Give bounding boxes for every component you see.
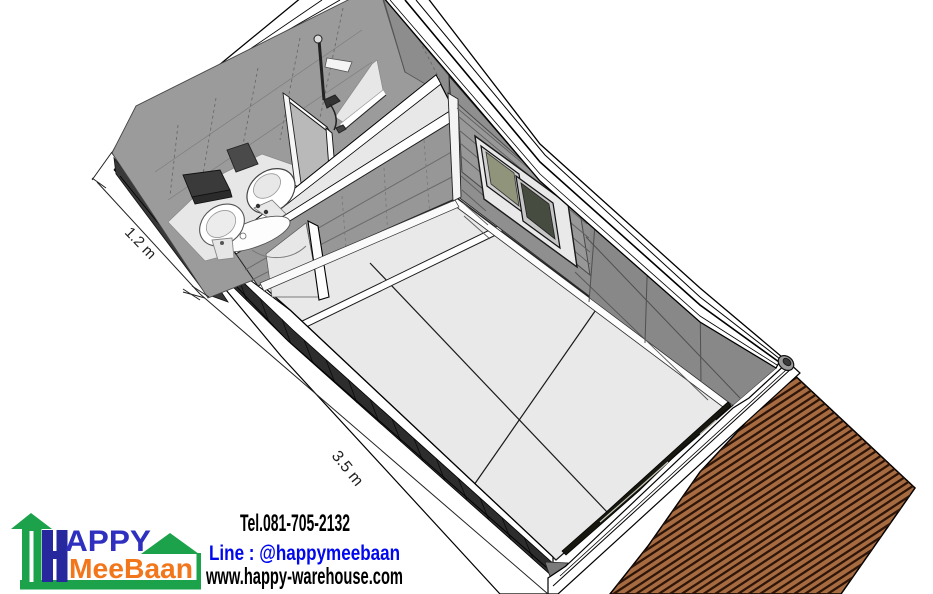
svg-text:MeeBaan: MeeBaan (69, 553, 193, 584)
svg-text:www.happy-warehouse.com: www.happy-warehouse.com (205, 563, 403, 589)
svg-text:Line : @happymeebaan: Line : @happymeebaan (209, 542, 400, 565)
svg-text:Tel.081-705-2132: Tel.081-705-2132 (240, 510, 350, 537)
svg-text:3.5 m: 3.5 m (328, 448, 366, 490)
